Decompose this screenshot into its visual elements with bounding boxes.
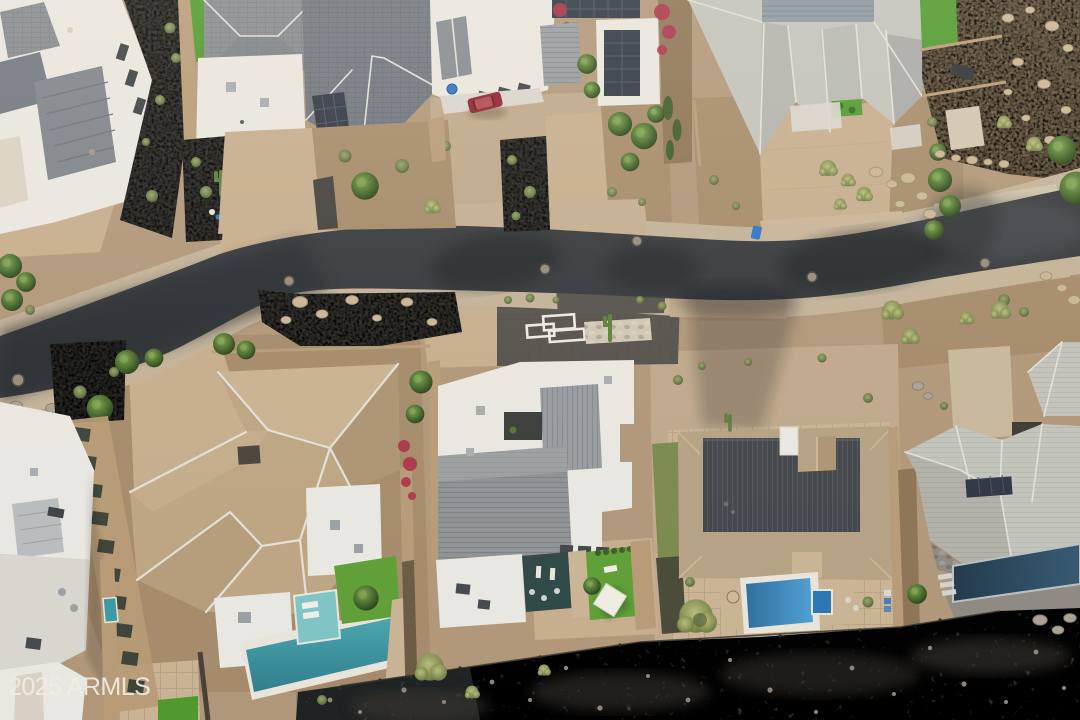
aerial-photo: 2025 ARMLS <box>0 0 1080 720</box>
aerial-photo-stage: 2025 ARMLS <box>0 0 1080 720</box>
atmospheric-haze <box>0 0 1080 720</box>
watermark: 2025 ARMLS <box>8 673 150 701</box>
